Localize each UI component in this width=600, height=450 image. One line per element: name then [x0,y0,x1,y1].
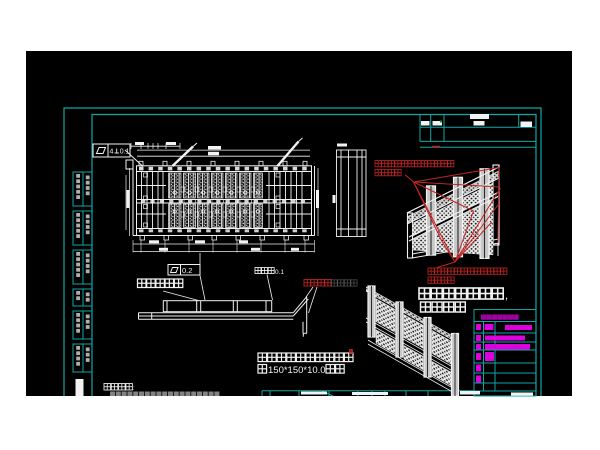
svg-text:150*150*10.0: 150*150*10.0 [268,365,326,376]
svg-text:0.1: 0.1 [275,269,284,276]
svg-text:0.2: 0.2 [182,266,192,275]
svg-text:,: , [505,290,508,302]
svg-text:0.1: 0.1 [120,149,130,156]
svg-text:4: 4 [110,149,114,156]
